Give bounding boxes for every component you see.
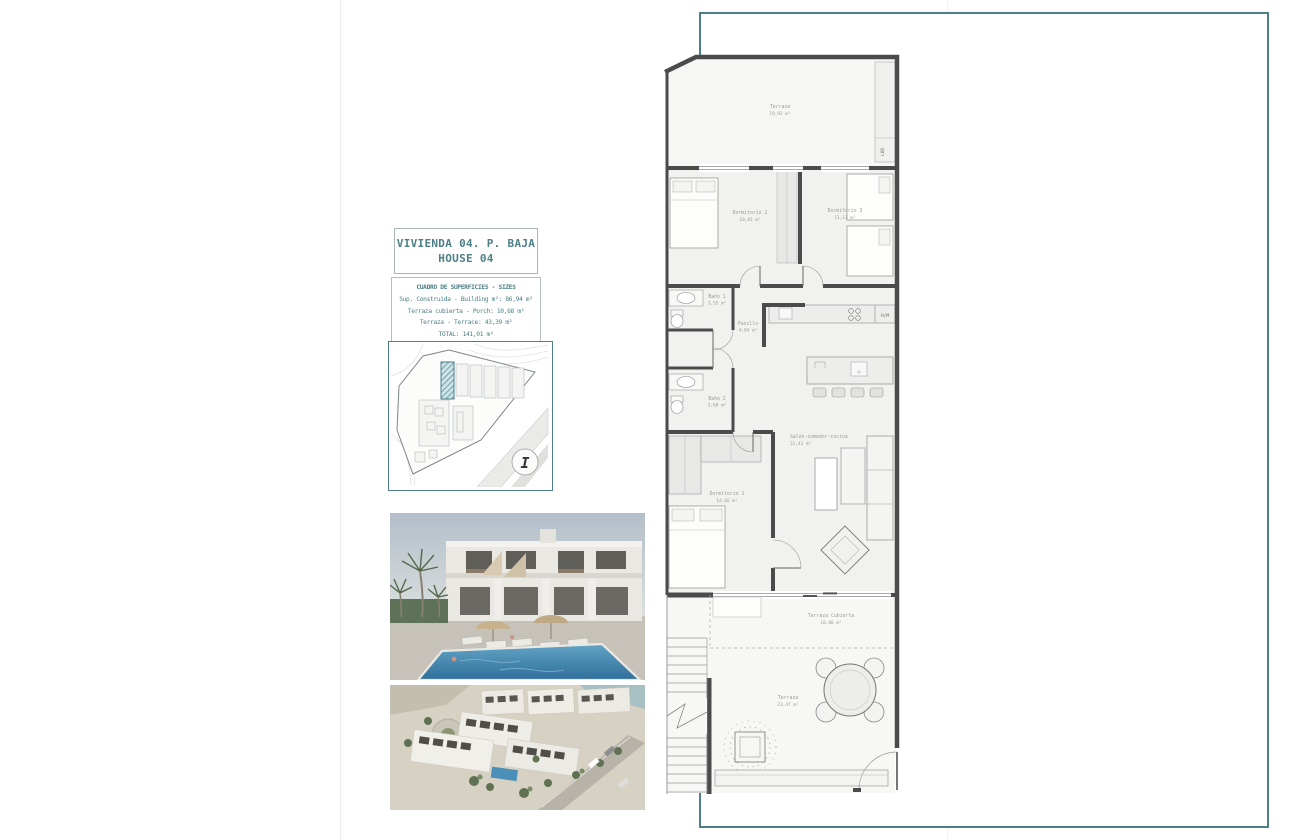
room-area-dormitorio3: 11,11 m² <box>834 215 855 221</box>
swimmer <box>452 657 457 662</box>
room-area-salon: 31,41 m² <box>790 441 811 447</box>
room-label-dormitorio3: Dormitorio 3 <box>828 208 863 214</box>
step <box>713 597 761 617</box>
aerial-render-drawing <box>390 685 645 810</box>
aerial-render <box>390 685 645 810</box>
kitchen-counter <box>769 305 895 323</box>
surface-table-header: CUADRO DE SUPERFICIES - SIZES <box>416 282 515 294</box>
room-area-dormitorio1: 14,66 m² <box>716 498 737 504</box>
room-area-bano2: 3,60 m² <box>708 403 727 409</box>
bench <box>715 770 888 786</box>
building-facade <box>446 529 642 621</box>
room-label-bano2: Baño 2 <box>708 396 725 402</box>
room-area-terraza-bottom: 23,47 m² <box>777 702 798 708</box>
room-area-pasillo: 4,04 m² <box>739 328 758 334</box>
coffee-table <box>815 458 837 510</box>
room-area-bano1: 3,55 m² <box>708 301 727 307</box>
surface-table: CUADRO DE SUPERFICIES - SIZES Sup. Const… <box>391 277 541 346</box>
floor-plan-drawing: Terraza 19,92 m² Dormitorio 2 10,01 m² D… <box>655 38 915 818</box>
exterior-render-pool <box>390 513 645 680</box>
person <box>510 635 514 639</box>
room-area-dormitorio2: 10,01 m² <box>739 217 760 223</box>
room-area-terraza-cubierta: 10,08 m² <box>820 620 841 626</box>
stair-break <box>667 698 707 734</box>
title-line2: HOUSE 04 <box>438 252 493 265</box>
room-label-terraza-cubierta: Terraza Cubierta <box>808 613 854 619</box>
room-label-bano1: Baño 1 <box>708 294 725 300</box>
room-label-pasillo: Pasillo <box>738 321 758 327</box>
surface-row-building: Sup. Construida - Building m²: 86,94 m² <box>399 294 533 306</box>
screenshot-canvas: { "document": { "title_line1": "VIVIENDA… <box>0 0 1290 840</box>
room-label-dormitorio1: Dormitorio 1 <box>710 491 745 497</box>
room-label-terraza-top: Terraza <box>770 104 790 110</box>
exterior-render-drawing <box>390 513 645 680</box>
room-label-dormitorio2: Dormitorio 2 <box>733 210 768 216</box>
surface-row-porch: Terraza cubierta - Porch: 10,68 m² <box>408 306 524 318</box>
site-plan-drawing: I <box>389 342 549 487</box>
surface-row-terrace: Terraza - Terrace: 43,39 m² <box>420 317 512 329</box>
room-label-terraza-bottom: Terraza <box>778 695 798 701</box>
laundry-closet <box>875 62 895 162</box>
room-area-terraza-top: 19,92 m² <box>769 111 790 117</box>
double-bed-symbol-dorm1 <box>669 506 725 588</box>
highlighted-unit <box>441 362 454 399</box>
north-marker-label: I <box>520 454 529 472</box>
laundry-column-label: LVD <box>880 148 886 156</box>
terrace-table-set <box>816 658 884 722</box>
title-line1: VIVIENDA 04. P. BAJA <box>397 237 535 250</box>
room-label-salon: Salón-comedor-cocina <box>790 433 848 440</box>
double-bed-symbol-dorm2 <box>670 178 718 248</box>
title-block: VIVIENDA 04. P. BAJA HOUSE 04 <box>394 228 538 274</box>
appliance-column-label: H/M <box>881 313 889 319</box>
site-plan: I <box>388 341 553 491</box>
surface-row-total: TOTAL: 141,01 m² <box>439 329 494 341</box>
floor-plan: Terraza 19,92 m² Dormitorio 2 10,01 m² D… <box>655 38 915 818</box>
